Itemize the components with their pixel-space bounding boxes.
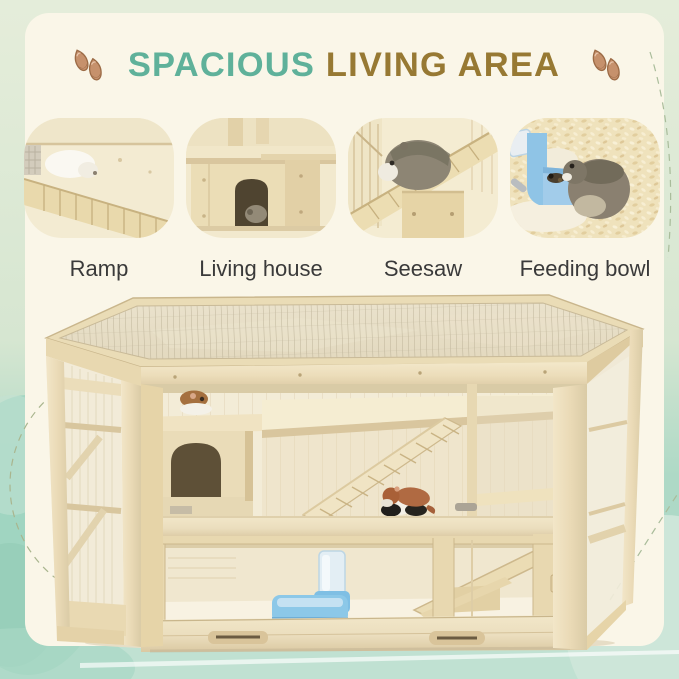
svg-text:Seesaw: Seesaw	[384, 256, 462, 281]
svg-text:Ramp: Ramp	[70, 256, 129, 281]
svg-text:SPACIOUS LIVING AREA: SPACIOUS LIVING AREA	[128, 46, 560, 84]
svg-text:Feeding bowl: Feeding bowl	[520, 256, 651, 281]
svg-text:Living house: Living house	[199, 256, 323, 281]
